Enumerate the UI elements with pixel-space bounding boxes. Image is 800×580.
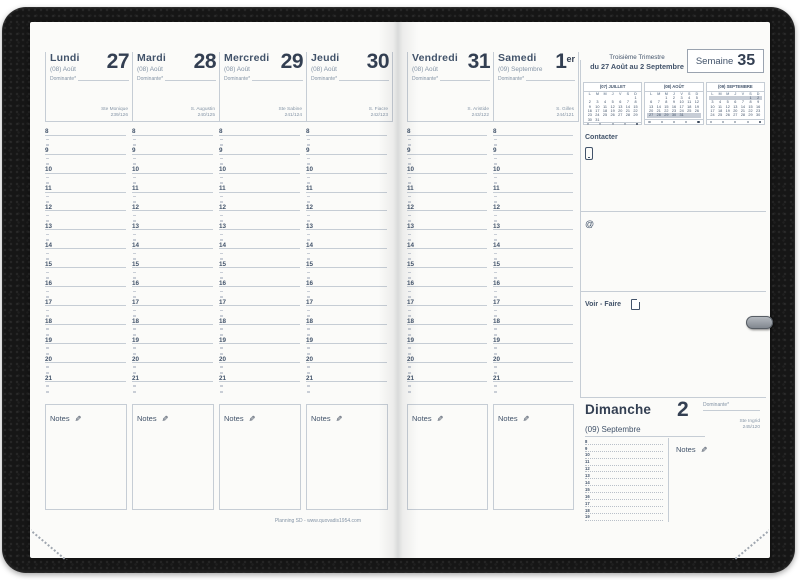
hour-line[interactable]: 13 bbox=[407, 223, 487, 231]
hour-label: 10 bbox=[585, 453, 590, 457]
hour-line[interactable]: 17 bbox=[219, 299, 300, 307]
hour-line[interactable]: 10 bbox=[407, 166, 487, 174]
dominante-label[interactable]: Dominante* bbox=[703, 402, 760, 411]
sunday-hour-line[interactable]: 17 bbox=[585, 500, 663, 507]
saint-of-day: S. Fiacre242/123 bbox=[311, 107, 389, 119]
dominante-writing-line[interactable] bbox=[78, 80, 129, 81]
mini-calendar-grid: LMMJVSD123456789101112131415161718192021… bbox=[707, 92, 764, 119]
hour-line[interactable]: 21 bbox=[407, 375, 487, 383]
moon-phase-row bbox=[584, 122, 641, 125]
quarter-tick bbox=[45, 388, 126, 394]
hour-line[interactable]: 9 bbox=[45, 147, 126, 155]
hour-line[interactable]: 17 bbox=[132, 299, 213, 307]
hour-label: 18 bbox=[585, 509, 590, 513]
hour-grid[interactable]: 89101112131415161718192021 bbox=[132, 128, 219, 394]
day-column: Lundi (08) Août 27 Dominante* Ste Moniqu… bbox=[45, 52, 132, 510]
hour-line[interactable]: 17 bbox=[45, 299, 126, 307]
mini-calendar-day[interactable]: 31 bbox=[678, 113, 686, 117]
mini-calendar-title: (08) AOÛT bbox=[645, 83, 702, 92]
hour-line[interactable]: 10 bbox=[45, 166, 126, 174]
mini-calendar-day[interactable]: 26 bbox=[724, 113, 732, 117]
day-name: Samedi bbox=[498, 53, 542, 65]
hour-label: 19 bbox=[585, 515, 590, 519]
hour-line[interactable]: 12 bbox=[219, 204, 300, 212]
mini-calendar-day[interactable]: 27 bbox=[732, 113, 740, 117]
day-number-suffix: er bbox=[566, 54, 575, 64]
dominante-writing-line[interactable] bbox=[526, 80, 575, 81]
hour-line[interactable]: 20 bbox=[407, 356, 487, 364]
quarter-tick bbox=[493, 388, 573, 394]
saint-of-day: S. Augustin240/125 bbox=[137, 107, 216, 119]
day-of-year-count: 244/121 bbox=[557, 113, 574, 118]
hour-line[interactable]: 9 bbox=[407, 147, 487, 155]
mini-calendar-day bbox=[693, 113, 701, 117]
notes-label: Notes bbox=[137, 414, 157, 423]
day-name: Mardi bbox=[137, 53, 166, 65]
hour-grid[interactable]: 89101112131415161718192021 bbox=[493, 128, 579, 394]
hour-line[interactable]: 18 bbox=[306, 318, 387, 326]
hour-label: 15 bbox=[585, 488, 590, 492]
hour-line[interactable]: 18 bbox=[407, 318, 487, 326]
week-summary-section: Troisième Trimestre du 27 Août au 2 Sept… bbox=[580, 52, 766, 530]
hour-line[interactable]: 15 bbox=[493, 261, 573, 269]
hour-grid[interactable]: 89101112131415161718192021 bbox=[219, 128, 306, 394]
day-number: 28 bbox=[194, 53, 216, 72]
sunday-hour-grid[interactable]: 8910111213141516171819 bbox=[585, 438, 669, 522]
todo-label: Voir - Faire bbox=[585, 301, 621, 308]
brand-footer: Planning SD - www.quovadis1954.com bbox=[30, 518, 361, 524]
hour-line[interactable]: 18 bbox=[219, 318, 300, 326]
hour-line[interactable]: 16 bbox=[493, 280, 573, 288]
day-month: (08) Août bbox=[311, 66, 339, 73]
hour-line[interactable]: 8 bbox=[493, 128, 573, 136]
mini-calendar-day[interactable]: 30 bbox=[670, 113, 678, 117]
hour-line[interactable]: 17 bbox=[493, 299, 573, 307]
day-month: (08) Août bbox=[137, 66, 166, 73]
hour-label: 9 bbox=[585, 447, 587, 451]
notes-label: Notes bbox=[412, 414, 432, 423]
hour-label: 8 bbox=[585, 440, 587, 444]
hour-line[interactable]: 21 bbox=[45, 375, 126, 383]
hour-line[interactable]: 10 bbox=[132, 166, 213, 174]
saint-of-day: S. Gilles244/121 bbox=[498, 107, 575, 119]
hour-line[interactable]: 14 bbox=[219, 242, 300, 250]
contact-label: Contacter bbox=[585, 134, 618, 141]
mini-calendar-day bbox=[685, 113, 693, 117]
day-header: Jeudi (08) Août 30 Dominante* S. Fiacre2… bbox=[306, 52, 393, 122]
hour-line[interactable]: 11 bbox=[132, 185, 213, 193]
phone-icon bbox=[585, 147, 593, 160]
hour-line[interactable]: 17 bbox=[407, 299, 487, 307]
quarter-tick bbox=[306, 388, 387, 394]
notes-box[interactable]: Notes✎ bbox=[132, 404, 214, 510]
hour-line[interactable]: 17 bbox=[306, 299, 387, 307]
moon-phase-row bbox=[645, 119, 702, 125]
day-month: (09) Septembre bbox=[498, 66, 542, 73]
hour-line[interactable]: 8 bbox=[306, 128, 387, 136]
pencil-icon: ✎ bbox=[159, 415, 168, 422]
hour-line[interactable]: 21 bbox=[132, 375, 213, 383]
day-month: (08) Août bbox=[50, 66, 80, 73]
day-of-year-count: 240/125 bbox=[198, 113, 215, 118]
mini-calendar-day[interactable]: 28 bbox=[655, 113, 663, 117]
hour-line[interactable]: 12 bbox=[132, 204, 213, 212]
day-number: 29 bbox=[281, 53, 303, 72]
day-name: Lundi bbox=[50, 53, 80, 65]
notes-label: Notes bbox=[224, 414, 244, 423]
snap-tab[interactable] bbox=[746, 316, 773, 329]
hour-line[interactable]: 18 bbox=[45, 318, 126, 326]
week-number: 35 bbox=[737, 52, 755, 70]
mini-calendar-day[interactable]: 29 bbox=[663, 113, 671, 117]
hour-line[interactable]: 15 bbox=[132, 261, 213, 269]
saint-of-day: Ste Sabine241/124 bbox=[224, 107, 303, 119]
hour-line[interactable]: 14 bbox=[132, 242, 213, 250]
hour-line[interactable]: 20 bbox=[45, 356, 126, 364]
hour-line[interactable]: 10 bbox=[306, 166, 387, 174]
day-header: Mardi (08) Août 28 Dominante* S. Augusti… bbox=[132, 52, 219, 122]
day-of-year-count: 239/126 bbox=[111, 113, 128, 118]
notes-box[interactable]: Notes✎ bbox=[306, 404, 388, 510]
quarter-tick bbox=[219, 388, 300, 394]
dominante-writing-line[interactable] bbox=[440, 80, 490, 81]
hour-line[interactable]: 19 bbox=[306, 337, 387, 345]
hour-line[interactable]: 13 bbox=[132, 223, 213, 231]
hour-line[interactable]: 19 bbox=[407, 337, 487, 345]
week-number-box: Semaine 35 bbox=[687, 49, 764, 73]
hour-line[interactable]: 15 bbox=[407, 261, 487, 269]
day-of-year-count: 245/120 bbox=[743, 425, 760, 430]
day-number: 31 bbox=[468, 53, 490, 72]
sunday-block: Dimanche 2 Dominante* (09) Septembre Ste… bbox=[580, 397, 766, 520]
hour-line[interactable]: 13 bbox=[45, 223, 126, 231]
hour-line[interactable]: 19 bbox=[45, 337, 126, 345]
hour-label: 12 bbox=[585, 467, 590, 471]
day-of-year-count: 243/122 bbox=[472, 113, 489, 118]
pencil-icon: ✎ bbox=[246, 415, 255, 422]
hour-line[interactable]: 8 bbox=[45, 128, 126, 136]
hour-line[interactable]: 20 bbox=[306, 356, 387, 364]
hour-line[interactable]: 10 bbox=[493, 166, 573, 174]
hour-line[interactable]: 14 bbox=[45, 242, 126, 250]
sunday-hour-line[interactable]: 8 bbox=[585, 438, 663, 445]
notes-box[interactable]: Notes✎ bbox=[493, 404, 574, 510]
todo-area[interactable]: Voir - Faire bbox=[580, 292, 766, 397]
dominante-writing-line[interactable] bbox=[252, 80, 303, 81]
mini-calendar-day[interactable]: 29 bbox=[747, 113, 755, 117]
saint-of-day: Ste Monique239/126 bbox=[50, 107, 129, 119]
mini-calendar: (08) AOÛT LMMJVSD12345678910111213141516… bbox=[644, 82, 703, 125]
hour-line[interactable]: 15 bbox=[45, 261, 126, 269]
day-header: Samedi (09) Septembre 1er Dominante* S. … bbox=[493, 52, 579, 122]
hour-line[interactable]: 16 bbox=[407, 280, 487, 288]
pencil-icon: ✎ bbox=[434, 415, 443, 422]
hour-line[interactable]: 11 bbox=[45, 185, 126, 193]
notes-box[interactable]: Notes✎ bbox=[45, 404, 127, 510]
pencil-icon: ✎ bbox=[698, 446, 707, 453]
week-label: Semaine bbox=[696, 56, 734, 67]
mini-calendar: (07) JUILLET LMMJVSD12345678910111213141… bbox=[583, 82, 642, 125]
hour-label: 14 bbox=[585, 481, 590, 485]
hour-line[interactable]: 15 bbox=[219, 261, 300, 269]
day-month: (08) Août bbox=[412, 66, 458, 73]
saint-of-day: S. Aristide243/122 bbox=[412, 107, 490, 119]
day-column: Mercredi (08) Août 29 Dominante* Ste Sab… bbox=[219, 52, 306, 510]
hour-line[interactable]: 14 bbox=[493, 242, 573, 250]
day-name: Vendredi bbox=[412, 53, 458, 65]
left-page: Lundi (08) Août 27 Dominante* Ste Moniqu… bbox=[30, 22, 396, 558]
pencil-icon: ✎ bbox=[520, 415, 529, 422]
hour-label: 13 bbox=[585, 474, 590, 478]
hour-line[interactable]: 12 bbox=[493, 204, 573, 212]
day-month: (08) Août bbox=[224, 66, 269, 73]
section-divider bbox=[580, 60, 581, 397]
hour-line[interactable]: 10 bbox=[219, 166, 300, 174]
mini-calendar-day[interactable]: 28 bbox=[739, 113, 747, 117]
day-column: Mardi (08) Août 28 Dominante* S. Augusti… bbox=[132, 52, 219, 510]
hour-grid[interactable]: 89101112131415161718192021 bbox=[306, 128, 393, 394]
quarter-tick bbox=[407, 388, 487, 394]
sunday-hour-line[interactable]: 13 bbox=[585, 472, 663, 479]
hour-label: 17 bbox=[585, 502, 590, 506]
day-column: Vendredi (08) Août 31 Dominante* S. Aris… bbox=[407, 52, 493, 530]
mini-calendar-day[interactable]: 25 bbox=[716, 113, 724, 117]
hour-line[interactable]: 13 bbox=[493, 223, 573, 231]
hour-line[interactable]: 9 bbox=[132, 147, 213, 155]
pencil-icon: ✎ bbox=[333, 415, 342, 422]
trimester-label: Troisième Trimestre bbox=[584, 54, 690, 61]
sunday-hour-line[interactable]: 19 bbox=[585, 514, 663, 521]
hour-line[interactable]: 21 bbox=[493, 375, 573, 383]
hour-line[interactable]: 18 bbox=[132, 318, 213, 326]
mini-calendar-row: (07) JUILLET LMMJVSD12345678910111213141… bbox=[583, 82, 765, 125]
hour-line[interactable]: 8 bbox=[132, 128, 213, 136]
hour-line[interactable]: 16 bbox=[45, 280, 126, 288]
mini-calendar-title: (09) SEPTEMBRE bbox=[707, 83, 764, 92]
hour-line[interactable]: 21 bbox=[306, 375, 387, 383]
mini-calendar-grid: LMMJVSD123456789101112131415161718192021… bbox=[584, 92, 641, 123]
hour-line[interactable]: 9 bbox=[493, 147, 573, 155]
dominante-writing-line[interactable] bbox=[165, 80, 216, 81]
left-page-days: Lundi (08) Août 27 Dominante* Ste Moniqu… bbox=[45, 52, 393, 510]
pencil-icon: ✎ bbox=[72, 415, 81, 422]
hour-line[interactable]: 20 bbox=[493, 356, 573, 364]
day-header: Mercredi (08) Août 29 Dominante* Ste Sab… bbox=[219, 52, 306, 122]
hour-line[interactable]: 18 bbox=[493, 318, 573, 326]
hour-label: 11 bbox=[585, 460, 589, 464]
hour-line[interactable]: 20 bbox=[219, 356, 300, 364]
quarter-tick bbox=[132, 388, 213, 394]
contact-area[interactable]: Contacter bbox=[580, 125, 766, 212]
notes-box[interactable]: Notes✎ bbox=[219, 404, 301, 510]
hour-line[interactable]: 12 bbox=[407, 204, 487, 212]
hour-grid[interactable]: 89101112131415161718192021 bbox=[407, 128, 493, 394]
day-name: Mercredi bbox=[224, 53, 269, 65]
sunday-hour-line[interactable]: 12 bbox=[585, 466, 663, 473]
day-header: Lundi (08) Août 27 Dominante* Ste Moniqu… bbox=[45, 52, 132, 122]
day-name: Dimanche bbox=[585, 402, 651, 417]
notes-label: Notes bbox=[311, 414, 331, 423]
right-page: Vendredi (08) Août 31 Dominante* S. Aris… bbox=[397, 22, 770, 558]
hour-line[interactable]: 16 bbox=[219, 280, 300, 288]
hour-line[interactable]: 12 bbox=[306, 204, 387, 212]
hour-line[interactable]: 19 bbox=[132, 337, 213, 345]
day-number: 27 bbox=[107, 53, 129, 72]
hour-line[interactable]: 15 bbox=[306, 261, 387, 269]
day-of-year-count: 241/124 bbox=[285, 113, 302, 118]
mini-calendar-day[interactable]: 27 bbox=[647, 113, 655, 117]
hour-line[interactable]: 14 bbox=[306, 242, 387, 250]
sunday-hour-line[interactable]: 15 bbox=[585, 486, 663, 493]
mini-calendar-day[interactable]: 24 bbox=[709, 113, 717, 117]
hour-line[interactable]: 14 bbox=[407, 242, 487, 250]
week-range: du 27 Août au 2 Septembre bbox=[584, 62, 690, 71]
day-column: Jeudi (08) Août 30 Dominante* S. Fiacre2… bbox=[306, 52, 393, 510]
hour-line[interactable]: 11 bbox=[219, 185, 300, 193]
planner-photo: Lundi (08) Août 27 Dominante* Ste Moniqu… bbox=[0, 0, 800, 580]
mini-calendar-title: (07) JUILLET bbox=[584, 83, 641, 92]
hour-line[interactable]: 11 bbox=[407, 185, 487, 193]
day-number: 30 bbox=[367, 53, 389, 72]
day-name: Jeudi bbox=[311, 53, 339, 65]
hour-line[interactable]: 16 bbox=[306, 280, 387, 288]
sunday-hour-line[interactable]: 9 bbox=[585, 445, 663, 452]
dominante-writing-line[interactable] bbox=[339, 80, 389, 81]
hour-line[interactable]: 20 bbox=[132, 356, 213, 364]
hour-line[interactable]: 9 bbox=[219, 147, 300, 155]
hour-line[interactable]: 12 bbox=[45, 204, 126, 212]
hour-line[interactable]: 13 bbox=[306, 223, 387, 231]
email-area[interactable]: @ bbox=[580, 212, 766, 292]
notes-label: Notes bbox=[498, 414, 518, 423]
hour-line[interactable]: 9 bbox=[306, 147, 387, 155]
notes-box[interactable]: Notes✎ bbox=[407, 404, 488, 510]
notes-label: Notes bbox=[676, 445, 696, 454]
hour-line[interactable]: 8 bbox=[219, 128, 300, 136]
sunday-hour-line[interactable]: 14 bbox=[585, 479, 663, 486]
hour-label: 16 bbox=[585, 495, 590, 499]
hour-line[interactable]: 13 bbox=[219, 223, 300, 231]
moon-phase-row bbox=[707, 119, 764, 125]
hour-line[interactable]: 19 bbox=[219, 337, 300, 345]
day-header: Vendredi (08) Août 31 Dominante* S. Aris… bbox=[407, 52, 493, 122]
trimester-block: Troisième Trimestre du 27 Août au 2 Sept… bbox=[584, 52, 690, 71]
at-icon: @ bbox=[585, 219, 594, 229]
hour-line[interactable]: 8 bbox=[407, 128, 487, 136]
hour-line[interactable]: 11 bbox=[306, 185, 387, 193]
sunday-hour-line[interactable]: 11 bbox=[585, 459, 663, 466]
mini-calendar-grid: LMMJVSD123456789101112131415161718192021… bbox=[645, 92, 702, 119]
hour-line[interactable]: 16 bbox=[132, 280, 213, 288]
week-header: Troisième Trimestre du 27 Août au 2 Sept… bbox=[580, 52, 766, 74]
mini-calendar-day[interactable]: 30 bbox=[754, 113, 762, 117]
hour-line[interactable]: 11 bbox=[493, 185, 573, 193]
right-page-days: Vendredi (08) Août 31 Dominante* S. Aris… bbox=[407, 52, 766, 530]
day-column: Samedi (09) Septembre 1er Dominante* S. … bbox=[493, 52, 579, 530]
mini-calendar: (09) SEPTEMBRE LMMJVSD123456789101112131… bbox=[706, 82, 765, 125]
saint-of-day: Ste Ingrid245/120 bbox=[739, 419, 760, 431]
sunday-hour-line[interactable]: 18 bbox=[585, 507, 663, 514]
notes-label: Notes bbox=[50, 414, 70, 423]
notes-box[interactable]: Notes✎ bbox=[669, 438, 764, 522]
sunday-hour-line[interactable]: 16 bbox=[585, 493, 663, 500]
hour-line[interactable]: 19 bbox=[493, 337, 573, 345]
day-number: 1er bbox=[555, 53, 575, 72]
day-month: (09) Septembre bbox=[585, 425, 705, 437]
page-icon bbox=[631, 299, 640, 310]
day-number: 2 bbox=[677, 401, 689, 419]
hour-line[interactable]: 21 bbox=[219, 375, 300, 383]
hour-grid[interactable]: 89101112131415161718192021 bbox=[45, 128, 132, 394]
day-of-year-count: 242/123 bbox=[371, 113, 388, 118]
sunday-hour-line[interactable]: 10 bbox=[585, 452, 663, 459]
